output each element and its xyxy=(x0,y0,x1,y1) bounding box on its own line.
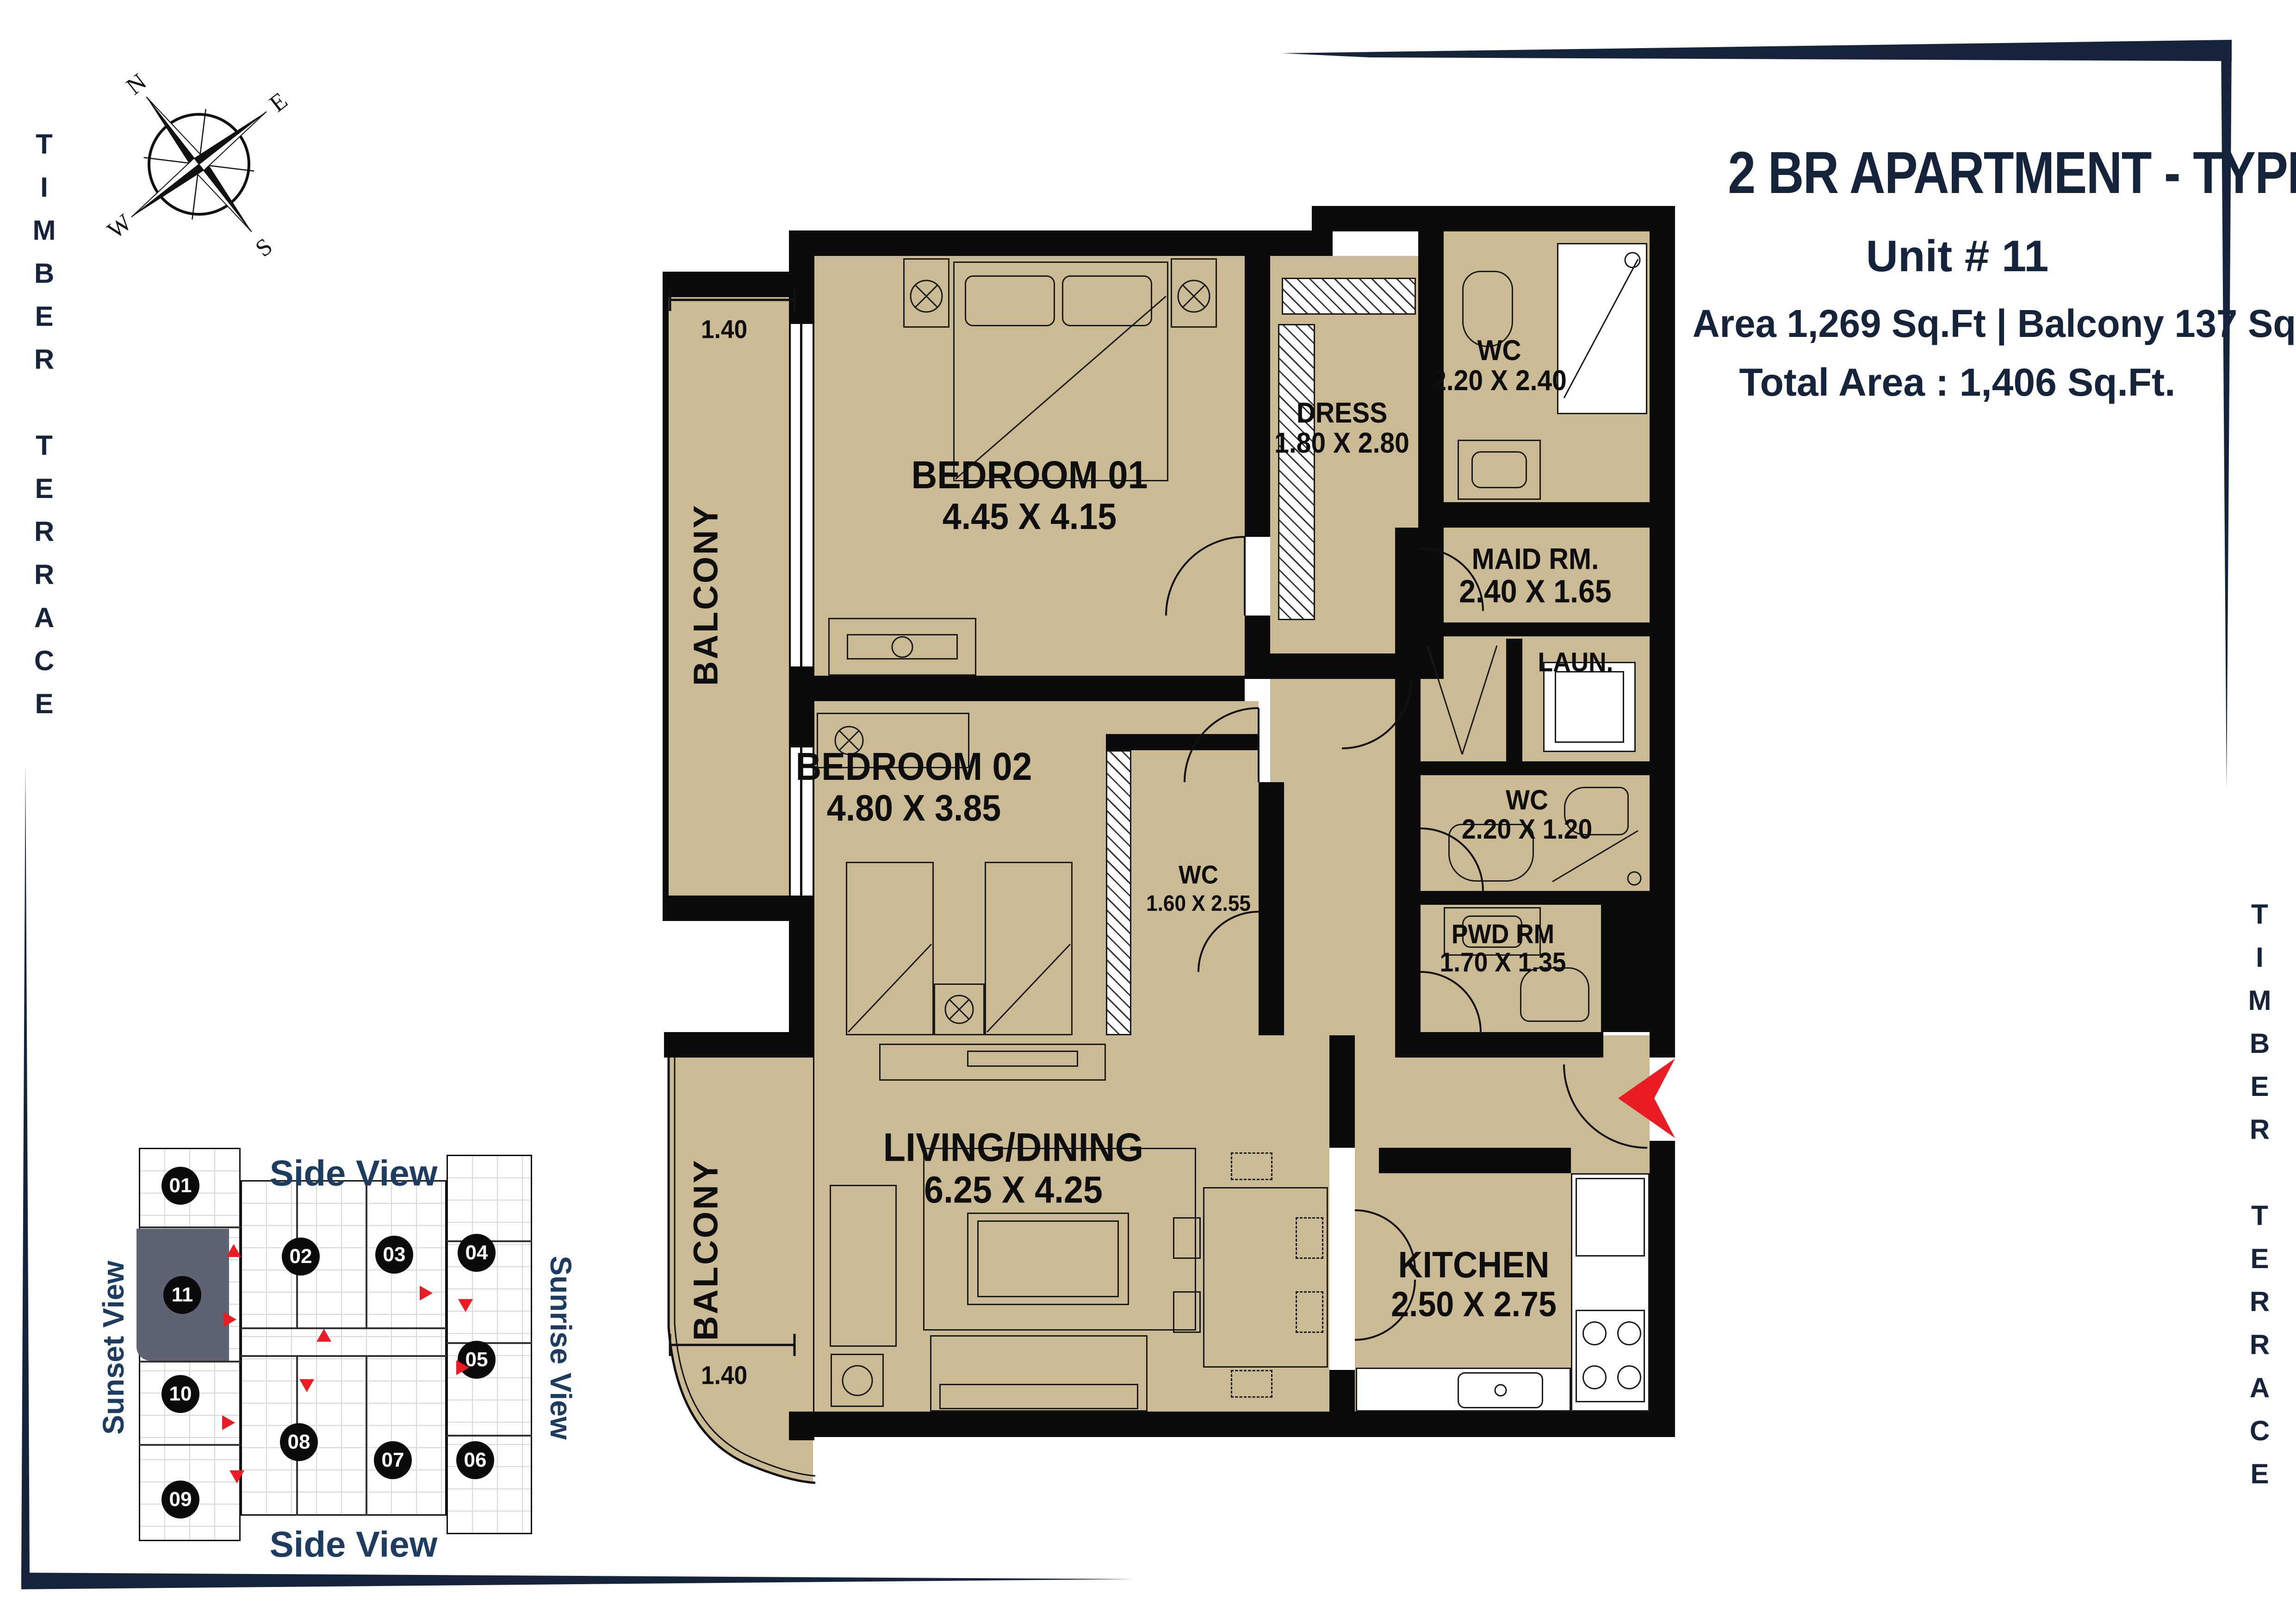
keyplan-wall xyxy=(241,1327,447,1329)
wall-hall-top xyxy=(1395,1032,1603,1058)
keyplan-wall xyxy=(366,1357,367,1516)
wall-bed1-corridor-a xyxy=(1245,256,1270,537)
compass-n: N xyxy=(122,68,152,100)
balcony-bottom-label: BALCONY xyxy=(686,1158,726,1341)
unit-number: 04 xyxy=(465,1241,488,1264)
unit-number: 02 xyxy=(290,1245,312,1268)
kitchen-sink xyxy=(1458,1372,1543,1408)
keyplan-unit-badge: 07 xyxy=(374,1441,412,1479)
dress-rail-top xyxy=(1282,278,1416,315)
room-name: MAID RM. xyxy=(1472,542,1599,576)
floorplan-page: TIMBER TERRACE TIMBER TERRACE 2 BR APART… xyxy=(0,0,2296,1624)
wall-right-lower xyxy=(1650,1141,1675,1437)
unit-number: 07 xyxy=(382,1449,404,1472)
dress-rail-left xyxy=(1278,324,1315,620)
dining-chair xyxy=(1231,1370,1272,1398)
room-dims: 2.40 X 1.65 xyxy=(1459,573,1611,610)
wall-left-seg2 xyxy=(789,666,814,747)
unit-number: 01 xyxy=(169,1174,192,1197)
powder-label: PWD RM 1.70 X 1.35 xyxy=(1440,921,1566,977)
wall-kitchen-left-a xyxy=(1329,1035,1355,1148)
room-name: PWD RM xyxy=(1452,919,1554,949)
kitchen-label: KITCHEN 2.50 X 2.75 xyxy=(1391,1245,1557,1323)
area-line: Area 1,269 Sq.Ft | Balcony 137 Sq.Ft. xyxy=(1693,301,2222,346)
wc-bedroom2-label: WC 1.60 X 2.55 xyxy=(1146,861,1251,916)
living-window xyxy=(789,1058,814,1384)
nightstand xyxy=(903,258,949,328)
building-name-right: TIMBER TERRACE xyxy=(2243,899,2276,1533)
keyplan-wall xyxy=(139,1226,241,1228)
dining-chair xyxy=(1296,1217,1323,1259)
hob-burner xyxy=(1617,1365,1641,1389)
dimension-value: 1.40 xyxy=(701,315,747,344)
unit-number: 05 xyxy=(465,1348,488,1371)
wall-top-left xyxy=(796,230,1333,256)
dining-table xyxy=(1203,1187,1328,1368)
room-name: WC xyxy=(1179,860,1218,889)
unit-number: 11 xyxy=(172,1283,193,1307)
fridge xyxy=(1576,1178,1645,1257)
dining-chair xyxy=(1173,1291,1201,1333)
unit-number: Unit # 11 xyxy=(1684,231,2230,282)
laundry-label: LAUN. xyxy=(1538,649,1613,677)
wall-kitchen-left-b xyxy=(1329,1370,1355,1412)
dining-chair xyxy=(1231,1152,1272,1180)
wc-master-label: WC 2.20 X 2.40 xyxy=(1432,336,1567,396)
room-name: BEDROOM 02 xyxy=(795,745,1032,788)
keyplan-side-view-bottom: Side View xyxy=(270,1524,438,1566)
room-dims: 2.20 X 2.40 xyxy=(1432,365,1567,397)
dining-chair xyxy=(1173,1217,1201,1259)
unit-number: 09 xyxy=(169,1488,192,1511)
keyplan-unit-badge: 01 xyxy=(161,1167,199,1205)
living-label: LIVING/DINING 6.25 X 4.25 xyxy=(883,1127,1144,1211)
keyplan-unit-badge: 10 xyxy=(161,1375,199,1413)
nightstand xyxy=(934,983,985,1035)
keyplan-wall xyxy=(366,1180,367,1327)
balcony-bottom-dim: 1.40 xyxy=(701,1362,747,1389)
wall-top-step xyxy=(1312,206,1333,256)
balcony-bottom-topwall xyxy=(664,1032,814,1058)
wall-right-upper xyxy=(1650,206,1675,1058)
keyplan-wall xyxy=(241,1355,447,1357)
washing-machine-inner xyxy=(1555,671,1624,743)
frame-top-bar xyxy=(1282,40,2232,61)
dresser-top xyxy=(847,634,958,660)
room-name: KITCHEN xyxy=(1398,1244,1549,1285)
tv xyxy=(967,1051,1078,1067)
keyplan-side-view-top: Side View xyxy=(270,1152,438,1195)
keyplan-unit-badge: 06 xyxy=(456,1441,494,1479)
balcony-top-label: BALCONY xyxy=(686,504,726,686)
corridor-floor xyxy=(1270,679,1395,1035)
wall-top-right xyxy=(1312,206,1675,231)
bed-single xyxy=(985,862,1073,1035)
room-name: BALCONY xyxy=(687,504,725,686)
keyplan-sunset-view: Sunset View xyxy=(96,1261,130,1435)
balcony-top-wall xyxy=(664,272,814,297)
wall-wc-bed2-top xyxy=(1106,734,1259,750)
bedroom1-label: BEDROOM 01 4.45 X 4.15 xyxy=(911,454,1148,536)
title-block: 2 BR APARTMENT - TYPE 3 Unit # 11 Area 1… xyxy=(1684,139,2230,405)
keyplan-sunrise-view: Sunrise View xyxy=(544,1256,578,1439)
keyplan-unit-badge-11: 11 xyxy=(163,1276,201,1314)
keyplan-wall xyxy=(447,1342,532,1344)
room-name: WC xyxy=(1477,335,1521,367)
coffee-table-inner xyxy=(977,1220,1119,1297)
wall-left-seg4 xyxy=(789,1384,814,1412)
building-name-left: TIMBER TERRACE xyxy=(28,129,60,749)
room-dims: 1.70 X 1.35 xyxy=(1440,947,1566,977)
wall-bed1-bed2 xyxy=(814,676,1245,701)
nightstand xyxy=(1171,258,1217,328)
hob-burner xyxy=(1582,1365,1607,1389)
keyplan-unit-badge: 02 xyxy=(282,1238,320,1276)
keyplan-wall xyxy=(139,1361,241,1363)
page-title: 2 BR APARTMENT - TYPE 3 xyxy=(1728,139,2186,207)
room-dims: 4.80 X 3.85 xyxy=(827,787,1001,828)
wall-dress-right xyxy=(1418,230,1444,653)
bedroom2-label: BEDROOM 02 4.80 X 3.85 xyxy=(795,746,1032,828)
room-name: LAUN. xyxy=(1538,647,1613,678)
room-dims: 4.45 X 4.15 xyxy=(943,496,1117,537)
room-dims: 1.80 X 2.80 xyxy=(1274,427,1409,459)
keyplan-wall xyxy=(447,1435,532,1437)
wall-maid-left xyxy=(1395,528,1421,1058)
sofa-seat-line xyxy=(939,1384,1138,1409)
dimension-value: 1.40 xyxy=(701,1361,747,1390)
unit-number: 06 xyxy=(464,1449,487,1472)
room-name: WC xyxy=(1506,784,1548,815)
room-dims: 2.50 X 2.75 xyxy=(1391,1285,1557,1324)
keyplan-wing-right xyxy=(447,1155,532,1534)
basin-master xyxy=(1471,451,1527,488)
wall-wc-master-bottom xyxy=(1418,502,1650,528)
bedroom1-window xyxy=(789,324,814,666)
wall-maid-bottom xyxy=(1421,622,1650,636)
keyplan-unit-badge: 05 xyxy=(458,1341,496,1379)
compass-w: W xyxy=(103,209,137,244)
keyplan-unit-badge: 04 xyxy=(458,1234,496,1272)
wall-kitchen-top xyxy=(1379,1148,1571,1173)
room-dims: 1.60 X 2.55 xyxy=(1146,891,1251,916)
bed-single xyxy=(846,862,934,1035)
pillow xyxy=(1062,275,1152,326)
wall-laundry-bottom xyxy=(1421,761,1650,775)
room-name: LIVING/DINING xyxy=(883,1126,1144,1170)
room-dims: 2.20 X 1.20 xyxy=(1462,814,1592,845)
wall-bottom xyxy=(812,1412,1675,1437)
balcony-top-dim: 1.40 xyxy=(701,316,747,343)
keyplan-unit-badge: 09 xyxy=(161,1481,199,1518)
compass-rose-icon: N E S W xyxy=(40,7,357,327)
keyplan-unit-badge: 08 xyxy=(280,1423,318,1461)
wall-corridor-left xyxy=(1259,782,1284,1035)
room-name: BALCONY xyxy=(687,1158,725,1341)
unit-number: 10 xyxy=(169,1382,192,1406)
balcony-top-rail xyxy=(663,272,669,921)
total-area-line: Total Area : 1,406 Sq.Ft. xyxy=(1684,360,2230,405)
room-name: DRESS xyxy=(1297,397,1388,429)
duct-shaft xyxy=(1601,902,1650,1032)
room-dims: 6.25 X 4.25 xyxy=(924,1169,1103,1211)
wc-guest-label: WC 2.20 X 1.20 xyxy=(1462,785,1592,844)
keyplan-wall xyxy=(139,1444,241,1446)
shower-master xyxy=(1557,243,1647,414)
unit-number: 08 xyxy=(288,1431,310,1454)
maid-label: MAID RM. 2.40 X 1.65 xyxy=(1459,544,1611,609)
frame-bottom-bar xyxy=(21,1573,1134,1589)
unit-number: 03 xyxy=(383,1243,406,1266)
side-table xyxy=(831,1354,884,1407)
closet-bedroom2 xyxy=(1106,750,1131,1035)
keyplan-wing-middle xyxy=(241,1180,447,1516)
compass-s: S xyxy=(251,233,278,262)
hob-burner xyxy=(1582,1321,1607,1345)
room-name: BEDROOM 01 xyxy=(911,453,1148,497)
balcony-top-bottomwall xyxy=(664,896,814,921)
wall-laundry-left xyxy=(1506,639,1522,761)
frame-left-bar xyxy=(21,764,30,1574)
compass-e: E xyxy=(265,87,292,117)
pillow xyxy=(965,275,1055,326)
wall-stub xyxy=(789,1412,814,1440)
hob-burner xyxy=(1617,1321,1641,1345)
dining-chair xyxy=(1296,1291,1323,1333)
dress-label: DRESS 1.80 X 2.80 xyxy=(1274,398,1409,458)
keyplan-unit-badge: 03 xyxy=(375,1236,413,1274)
